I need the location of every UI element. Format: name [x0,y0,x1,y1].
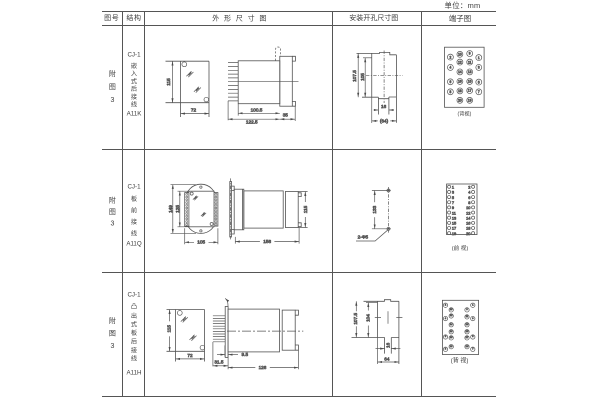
svg-text:(前 视): (前 视) [452,244,469,252]
svg-text:18: 18 [458,89,462,93]
svg-text:图号: 图号 [104,14,119,22]
svg-text:35: 35 [283,112,289,117]
svg-text:CJ-1: CJ-1 [127,51,141,58]
svg-text:6: 6 [450,80,452,84]
svg-text:19: 19 [468,99,472,103]
svg-text:19: 19 [452,231,456,236]
svg-text:16: 16 [458,80,462,84]
svg-text:接: 接 [131,93,137,101]
svg-text:3: 3 [478,66,480,70]
svg-text:156: 156 [263,239,271,244]
svg-text:式: 式 [131,321,137,329]
svg-text:9: 9 [469,52,471,56]
svg-text:接: 接 [131,218,137,226]
svg-text:115: 115 [166,78,171,86]
svg-text:115: 115 [166,325,171,333]
svg-text:附: 附 [109,69,116,78]
svg-text:式: 式 [131,77,137,85]
svg-text:CJ-1: CJ-1 [127,291,141,298]
svg-text:前: 前 [131,207,137,215]
svg-text:出: 出 [131,312,137,320]
svg-text:72: 72 [187,353,193,358]
svg-text:入: 入 [131,71,137,78]
svg-text:接: 接 [131,346,137,354]
svg-text:107.5: 107.5 [353,313,358,325]
svg-text:105: 105 [360,73,365,81]
svg-text:15: 15 [468,80,472,84]
svg-text:31.5: 31.5 [214,360,224,365]
svg-text:5: 5 [478,80,480,84]
svg-text:125: 125 [175,205,180,213]
svg-text:A11H: A11H [126,369,141,376]
svg-text:安装开孔尺寸图: 安装开孔尺寸图 [349,13,398,22]
svg-text:图: 图 [109,208,116,216]
svg-text:115: 115 [303,205,308,213]
svg-text:图: 图 [109,83,116,91]
svg-text:图: 图 [109,330,116,338]
svg-text:104: 104 [366,314,371,322]
svg-text:CJ-1: CJ-1 [127,184,141,191]
svg-text:72: 72 [191,108,197,113]
svg-text:A11K: A11K [127,111,143,118]
svg-text:A11Q: A11Q [126,240,142,247]
svg-text:2: 2 [450,55,452,59]
svg-text:10: 10 [458,53,462,57]
svg-text:附: 附 [109,316,116,325]
svg-text:133: 133 [372,205,377,213]
svg-text:单位：mm: 单位：mm [445,1,481,10]
svg-text:嵌: 嵌 [131,63,137,70]
svg-text:11: 11 [468,60,472,64]
svg-text:8: 8 [450,90,452,94]
svg-text:9.5: 9.5 [242,352,249,357]
svg-text:20: 20 [458,99,462,103]
svg-text:12: 12 [458,60,462,64]
svg-text:线: 线 [131,101,137,109]
svg-text:122.5: 122.5 [246,119,258,124]
svg-text:线: 线 [131,230,137,238]
svg-text:16: 16 [386,342,391,348]
svg-text:1: 1 [478,56,480,60]
svg-text:16: 16 [381,104,387,109]
svg-text:(64): (64) [380,118,389,123]
svg-text:端子图: 端子图 [449,14,471,23]
svg-text:126: 126 [259,365,267,370]
svg-text:2-Φ5: 2-Φ5 [358,234,369,239]
svg-text:3: 3 [110,343,114,350]
svg-text:3: 3 [110,97,114,104]
svg-text:7: 7 [478,90,480,94]
svg-text:后: 后 [131,338,137,346]
svg-text:64: 64 [384,356,390,361]
svg-text:17: 17 [468,89,472,93]
svg-text:附: 附 [109,196,116,205]
svg-text:107.5: 107.5 [352,70,357,82]
svg-text:4: 4 [450,66,452,70]
svg-text:13: 13 [468,70,472,74]
svg-text:板: 板 [131,195,137,203]
svg-text:后: 后 [131,85,137,93]
svg-text:(背视): (背视) [457,109,471,117]
svg-text:结构: 结构 [126,13,141,22]
svg-text:149: 149 [168,205,173,213]
svg-text:14: 14 [458,70,462,74]
svg-text:板: 板 [131,329,137,337]
svg-text:线: 线 [131,355,137,363]
svg-text:凸: 凸 [131,304,137,311]
svg-text:3: 3 [110,221,114,228]
svg-text:100.5: 100.5 [251,107,263,112]
svg-text:(背 视): (背 视) [451,356,469,364]
svg-text:105: 105 [197,240,205,245]
